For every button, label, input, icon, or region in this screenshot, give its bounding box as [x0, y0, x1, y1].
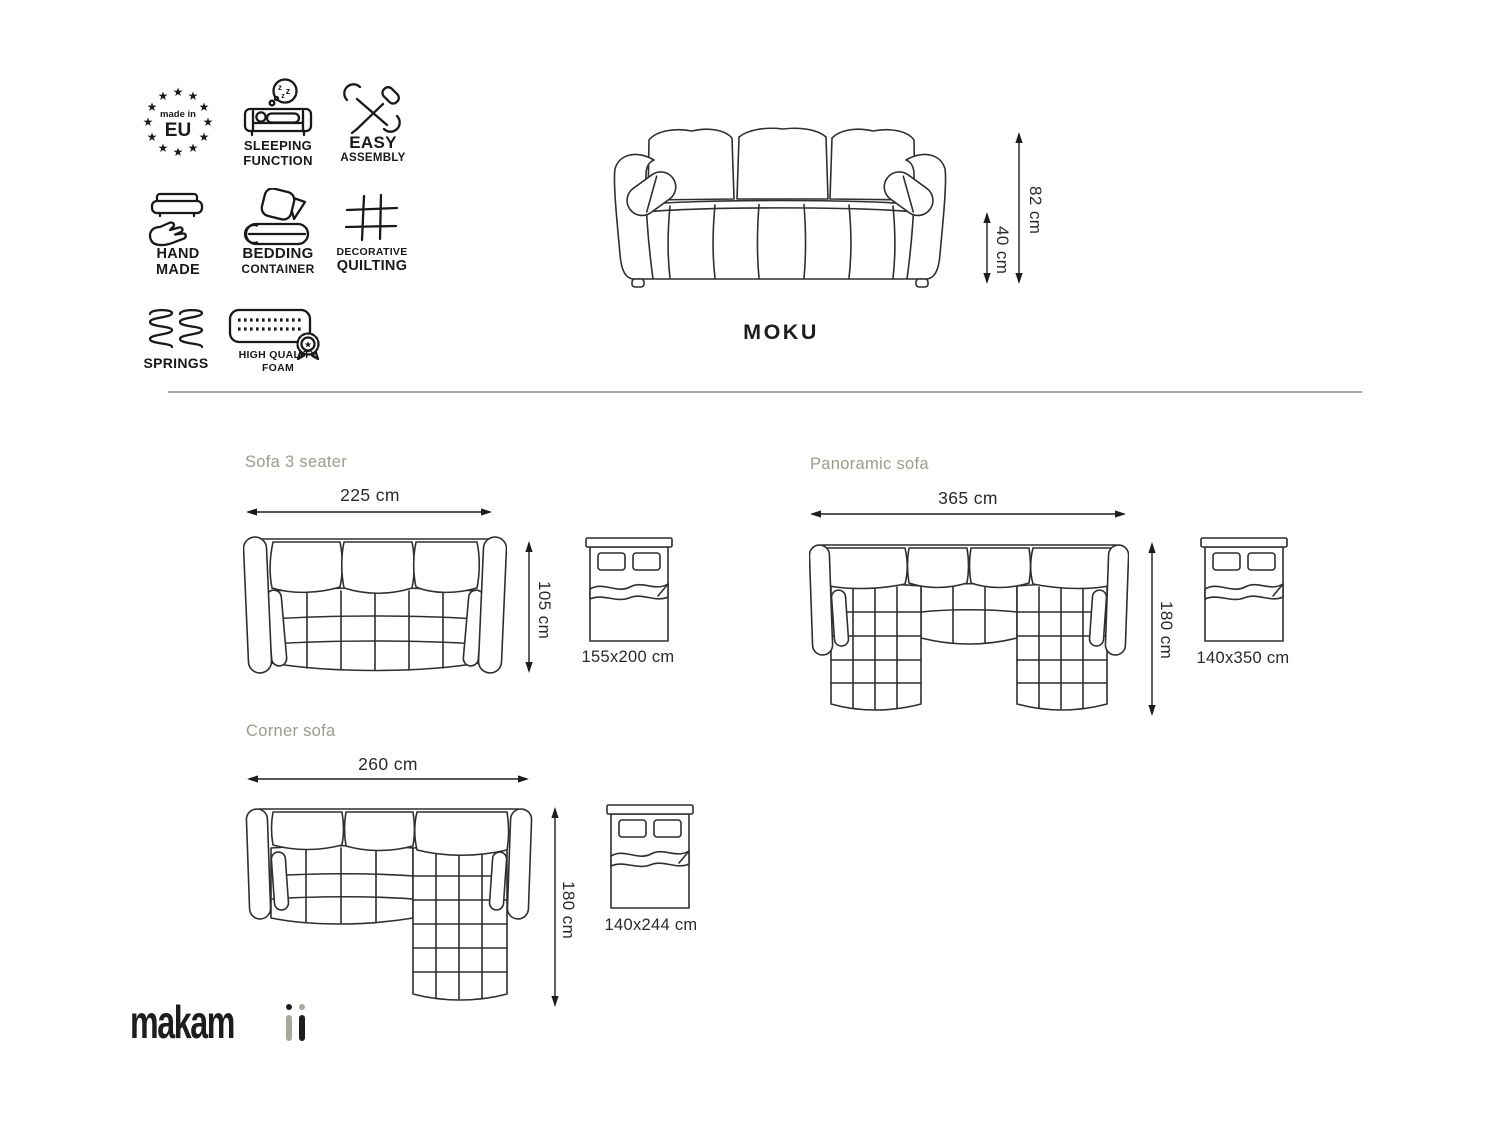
svg-text:★: ★ [143, 115, 154, 129]
three-seater-width-label: 225 cm [280, 485, 460, 506]
seat-height-label: 40 cm [992, 226, 1012, 274]
svg-text:★: ★ [188, 89, 199, 103]
panoramic-bed-icon [1200, 537, 1288, 643]
assembly-label: ASSEMBLY [330, 152, 416, 165]
sleeping-function-icon: z z z [238, 78, 318, 138]
brand-logo-i1 [286, 1004, 292, 1041]
made-in-eu-badge: ★★★ ★★★ ★★★ ★★★ made in EU [138, 83, 218, 161]
corner-bed-icon [606, 804, 694, 910]
svg-text:z: z [281, 93, 285, 100]
sleeping-function-label: SLEEPING FUNCTION [220, 139, 336, 168]
svg-text:z: z [286, 86, 291, 96]
made-in-label: made in [160, 109, 196, 120]
easy-label: EASY [330, 133, 416, 152]
svg-text:★: ★ [158, 141, 169, 155]
container-label: CONTAINER [226, 263, 330, 277]
springs-icon [145, 306, 207, 352]
svg-text:★: ★ [188, 141, 199, 155]
section-divider [168, 391, 1362, 393]
svg-text:z: z [278, 83, 282, 92]
three-seater-top-view-drawing [243, 533, 507, 679]
svg-text:★: ★ [304, 340, 312, 350]
eu-label: EU [165, 120, 191, 141]
brand-logo-text: makam [130, 1005, 234, 1041]
easy-assembly-icon [338, 82, 406, 134]
total-height-label: 82 cm [1025, 186, 1045, 234]
springs-label: SPRINGS [130, 356, 222, 372]
three-seater-bed-icon [585, 537, 673, 643]
svg-text:★: ★ [147, 100, 158, 114]
corner-bed-size: 140x244 cm [585, 916, 717, 935]
bedding-label: BEDDING [226, 246, 330, 263]
panoramic-width-label: 365 cm [878, 488, 1058, 509]
wrench-jaw-top [344, 84, 360, 100]
brand-logo: makam [130, 1004, 305, 1041]
panoramic-top-view-drawing [809, 540, 1129, 718]
screwdriver-handle [380, 85, 401, 106]
three-seater-width-arrow [245, 506, 493, 518]
product-spec-sheet: ★★★ ★★★ ★★★ ★★★ made in EU z z z [0, 0, 1500, 1125]
foam-label: HIGH QUALITY FOAM [224, 349, 332, 375]
sofa-front-view-drawing [597, 112, 963, 292]
three-seater-depth-label: 105 cm [534, 581, 554, 639]
corner-width-arrow [246, 773, 530, 785]
svg-text:★: ★ [173, 85, 184, 99]
corner-top-view-drawing [245, 804, 533, 1010]
brand-logo-i2 [299, 1004, 305, 1041]
svg-text:★: ★ [173, 145, 184, 159]
variant-title-panoramic: Panoramic sofa [810, 455, 929, 474]
svg-text:★: ★ [147, 130, 158, 144]
total-height-arrow [1013, 131, 1025, 285]
variant-title-corner: Corner sofa [246, 722, 336, 741]
three-seater-bed-size: 155x200 cm [562, 648, 694, 667]
corner-depth-label: 180 cm [558, 881, 578, 939]
svg-text:★: ★ [203, 115, 214, 129]
svg-text:★: ★ [199, 130, 210, 144]
corner-width-label: 260 cm [298, 754, 478, 775]
decorative-quilting-icon [345, 194, 399, 242]
bedding-container-icon [238, 188, 316, 248]
open-hand [150, 223, 186, 246]
svg-text:★: ★ [158, 89, 169, 103]
screwdriver-shaft [357, 104, 383, 129]
hand-made-icon [139, 190, 215, 248]
panoramic-bed-size: 140x350 cm [1177, 649, 1309, 668]
panoramic-width-arrow [809, 508, 1127, 520]
panoramic-depth-label: 180 cm [1156, 601, 1176, 659]
model-name: MOKU [706, 320, 856, 345]
quilting-label: QUILTING [322, 258, 422, 274]
hand-made-label: HAND MADE [134, 246, 222, 279]
variant-title-three-seater: Sofa 3 seater [245, 453, 347, 472]
svg-text:★: ★ [199, 100, 210, 114]
wrench-shaft [357, 99, 387, 125]
